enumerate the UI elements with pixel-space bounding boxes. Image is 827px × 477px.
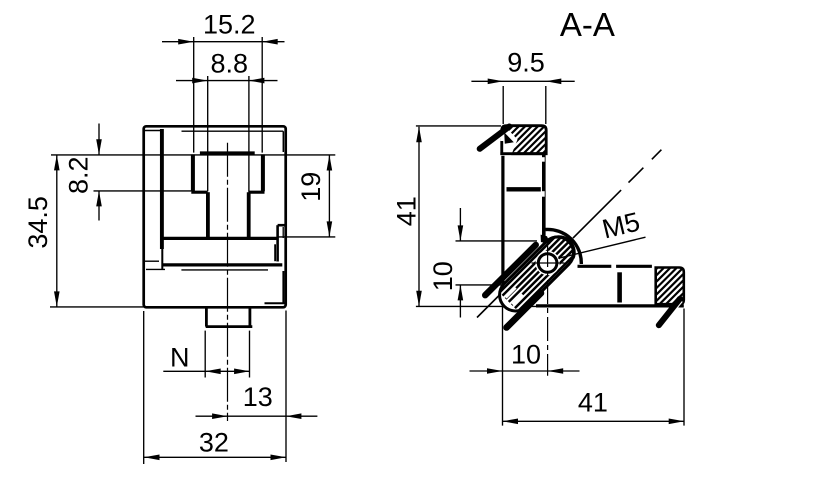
svg-text:41: 41 — [578, 387, 608, 417]
svg-text:34.5: 34.5 — [23, 196, 53, 249]
svg-text:41: 41 — [392, 196, 422, 226]
svg-text:9.5: 9.5 — [507, 47, 545, 77]
svg-text:10: 10 — [511, 340, 541, 370]
svg-text:15.2: 15.2 — [203, 10, 256, 40]
svg-text:10: 10 — [428, 261, 458, 291]
svg-text:N: N — [170, 342, 190, 372]
svg-text:A-A: A-A — [560, 6, 615, 43]
svg-text:8.8: 8.8 — [211, 49, 249, 79]
svg-text:8.2: 8.2 — [63, 156, 93, 194]
svg-text:32: 32 — [199, 428, 229, 458]
svg-text:13: 13 — [243, 382, 273, 412]
svg-text:19: 19 — [296, 172, 326, 202]
